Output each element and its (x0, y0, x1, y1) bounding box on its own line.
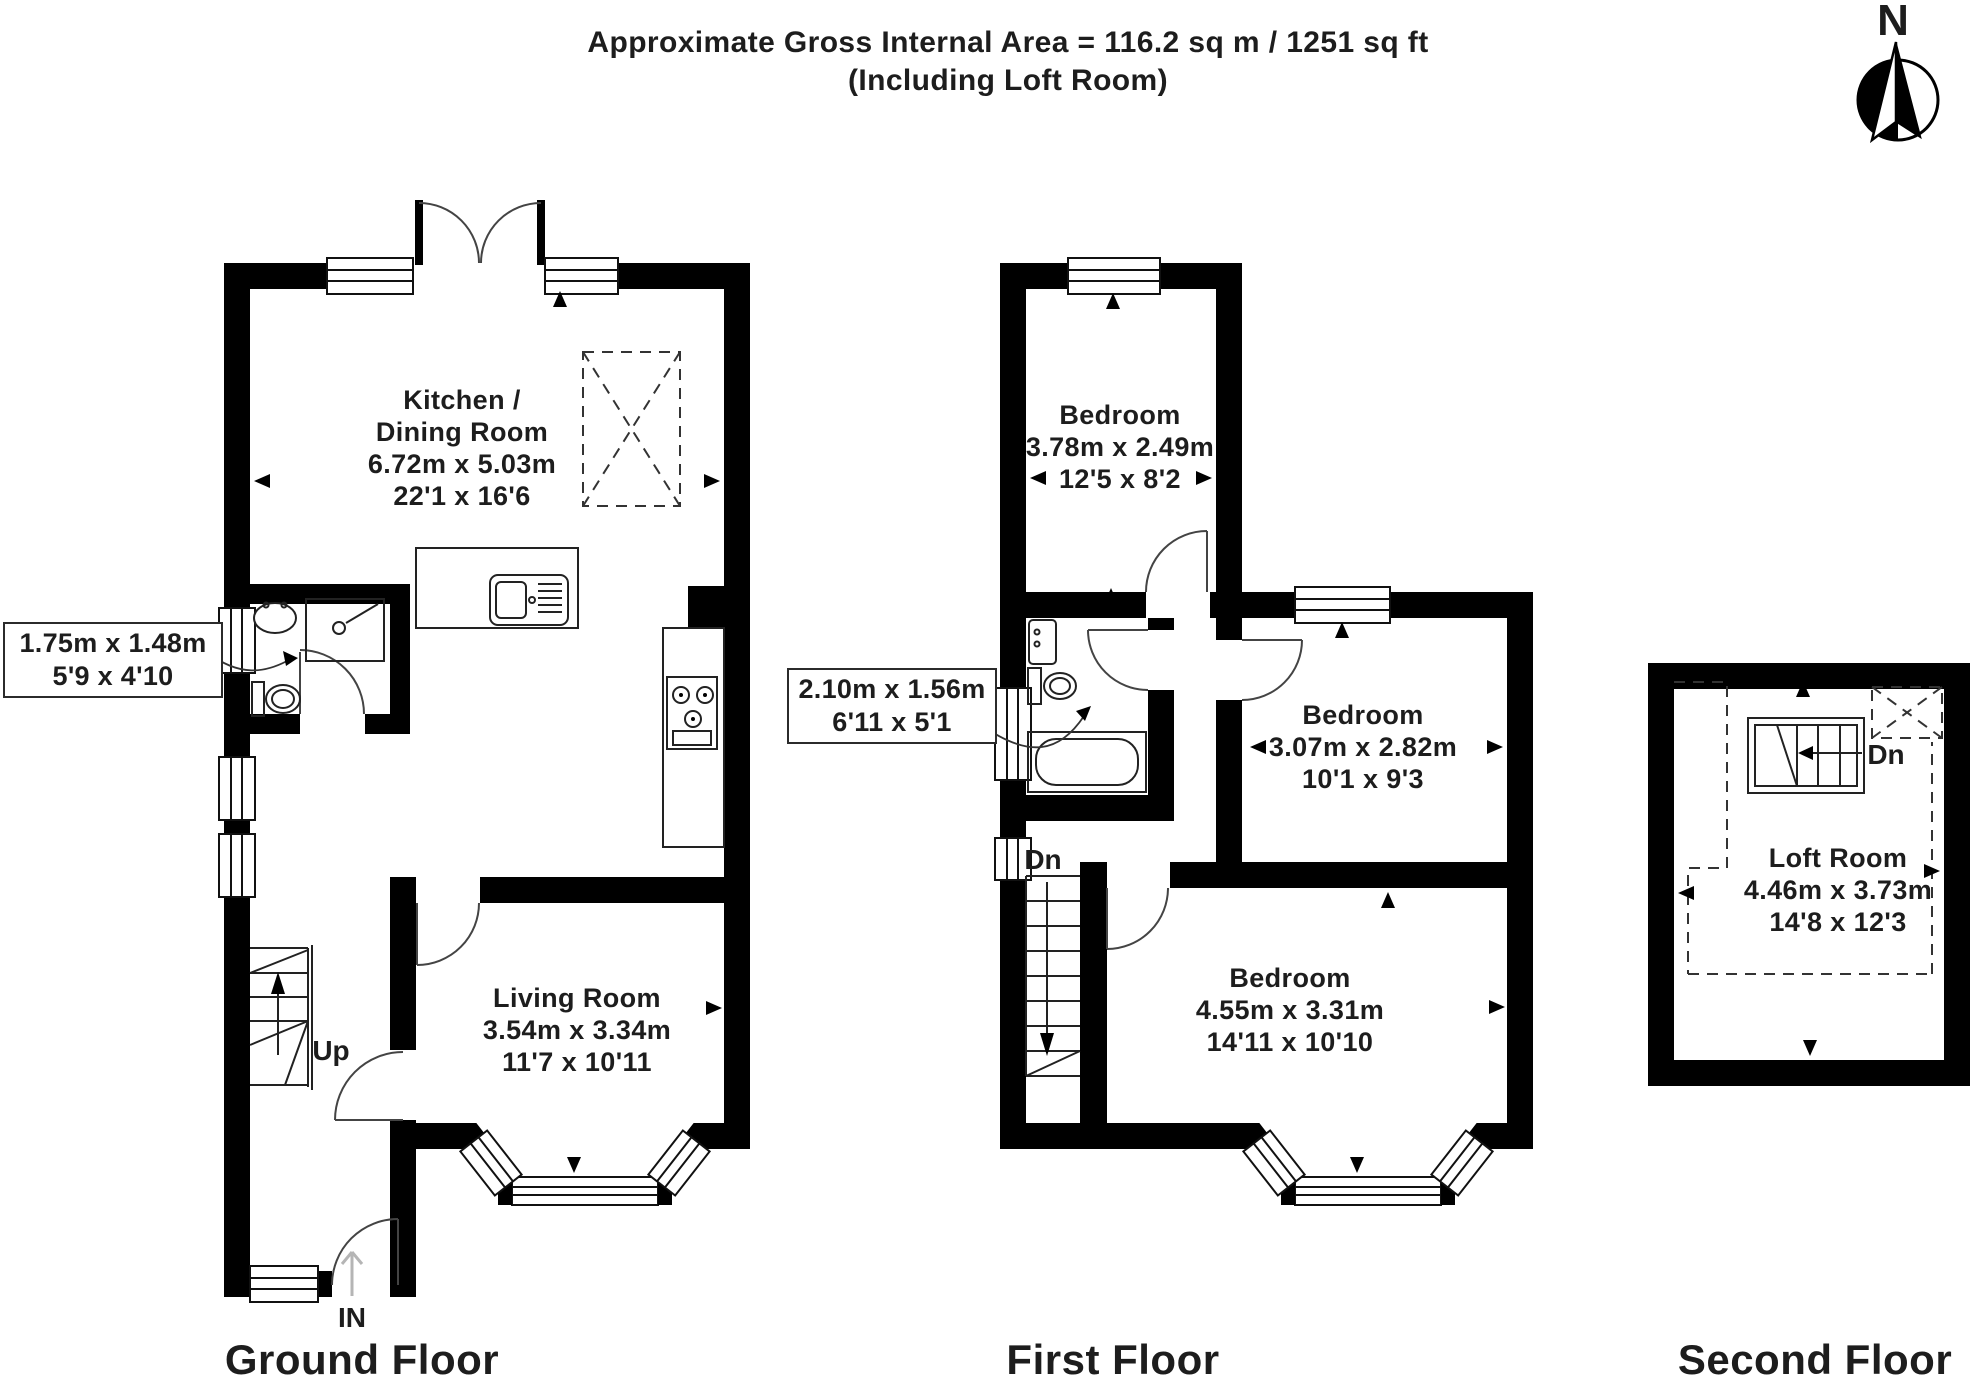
bedroom-2-label: Bedroom 3.07m x 2.82m 10'1 x 9'3 (1269, 699, 1457, 795)
first-staircase (1026, 876, 1080, 1076)
room-name: Bedroom (1269, 699, 1457, 731)
room-size-metric: 4.55m x 3.31m (1196, 994, 1384, 1026)
north-label: N (1877, 0, 1909, 46)
room-size-metric: 3.54m x 3.34m (483, 1014, 671, 1046)
ground-staircase (250, 945, 312, 1090)
room-name-line2: Dining Room (368, 416, 556, 448)
room-size-metric: 3.07m x 2.82m (1269, 731, 1457, 763)
second-staircase (1748, 718, 1864, 793)
kitchen-dining-label: Kitchen / Dining Room 6.72m x 5.03m 22'1… (368, 384, 556, 512)
room-size-imperial: 10'1 x 9'3 (1269, 763, 1457, 795)
room-size-imperial: 12'5 x 8'2 (1026, 463, 1214, 495)
toilet-cistern (252, 682, 264, 716)
room-size-imperial: 11'7 x 10'11 (483, 1046, 671, 1078)
stairs-dn-label-first: Dn (1024, 844, 1061, 876)
room-size-metric: 2.10m x 1.56m (797, 673, 987, 706)
room-name-line1: Kitchen / (368, 384, 556, 416)
floorplan-page: Approximate Gross Internal Area = 116.2 … (0, 0, 1984, 1384)
room-name: Loft Room (1744, 842, 1932, 874)
page-title: Approximate Gross Internal Area = 116.2 … (587, 24, 1428, 100)
compass-icon (1858, 42, 1938, 140)
bedroom-3-label: Bedroom 4.55m x 3.31m 14'11 x 10'10 (1196, 962, 1384, 1058)
loft-room-label: Loft Room 4.46m x 3.73m 14'8 x 12'3 (1744, 842, 1932, 938)
room-size-metric: 4.46m x 3.73m (1744, 874, 1932, 906)
title-line-1: Approximate Gross Internal Area = 116.2 … (587, 24, 1428, 62)
room-size-metric: 3.78m x 2.49m (1026, 431, 1214, 463)
room-size-metric: 1.75m x 1.48m (13, 627, 213, 660)
entrance-in-arrow (342, 1252, 362, 1296)
ground-floor-name: Ground Floor (225, 1337, 499, 1383)
living-room-label: Living Room 3.54m x 3.34m 11'7 x 10'11 (483, 982, 671, 1078)
room-size-imperial: 14'8 x 12'3 (1744, 906, 1932, 938)
room-size-imperial: 6'11 x 5'1 (797, 706, 987, 739)
wc-size-callout: 1.75m x 1.48m 5'9 x 4'10 (3, 622, 223, 698)
title-line-2: (Including Loft Room) (587, 62, 1428, 100)
bathroom-fixtures (1028, 620, 1146, 792)
bedroom-1-label: Bedroom 3.78m x 2.49m 12'5 x 8'2 (1026, 399, 1214, 495)
entrance-in-label: IN (338, 1302, 366, 1334)
first-floor-name: First Floor (1006, 1337, 1219, 1383)
wc-fixtures (252, 599, 384, 716)
room-name: Living Room (483, 982, 671, 1014)
room-name: Bedroom (1196, 962, 1384, 994)
room-size-metric: 6.72m x 5.03m (368, 448, 556, 480)
room-size-imperial: 5'9 x 4'10 (13, 660, 213, 693)
ground-floor-plan (207, 200, 750, 1302)
ground-doors (300, 203, 541, 1285)
bathroom-size-callout: 2.10m x 1.56m 6'11 x 5'1 (787, 668, 997, 744)
stairs-up-label: Up (312, 1035, 349, 1067)
skylight-dashed (1872, 687, 1942, 738)
room-name: Bedroom (1026, 399, 1214, 431)
bathroom-sink (1029, 620, 1056, 664)
room-size-imperial: 14'11 x 10'10 (1196, 1026, 1384, 1058)
kitchen-island-dashed (583, 352, 680, 506)
stairs-dn-label-second: Dn (1867, 739, 1904, 771)
room-size-imperial: 22'1 x 16'6 (368, 480, 556, 512)
second-floor-name: Second Floor (1678, 1337, 1952, 1383)
